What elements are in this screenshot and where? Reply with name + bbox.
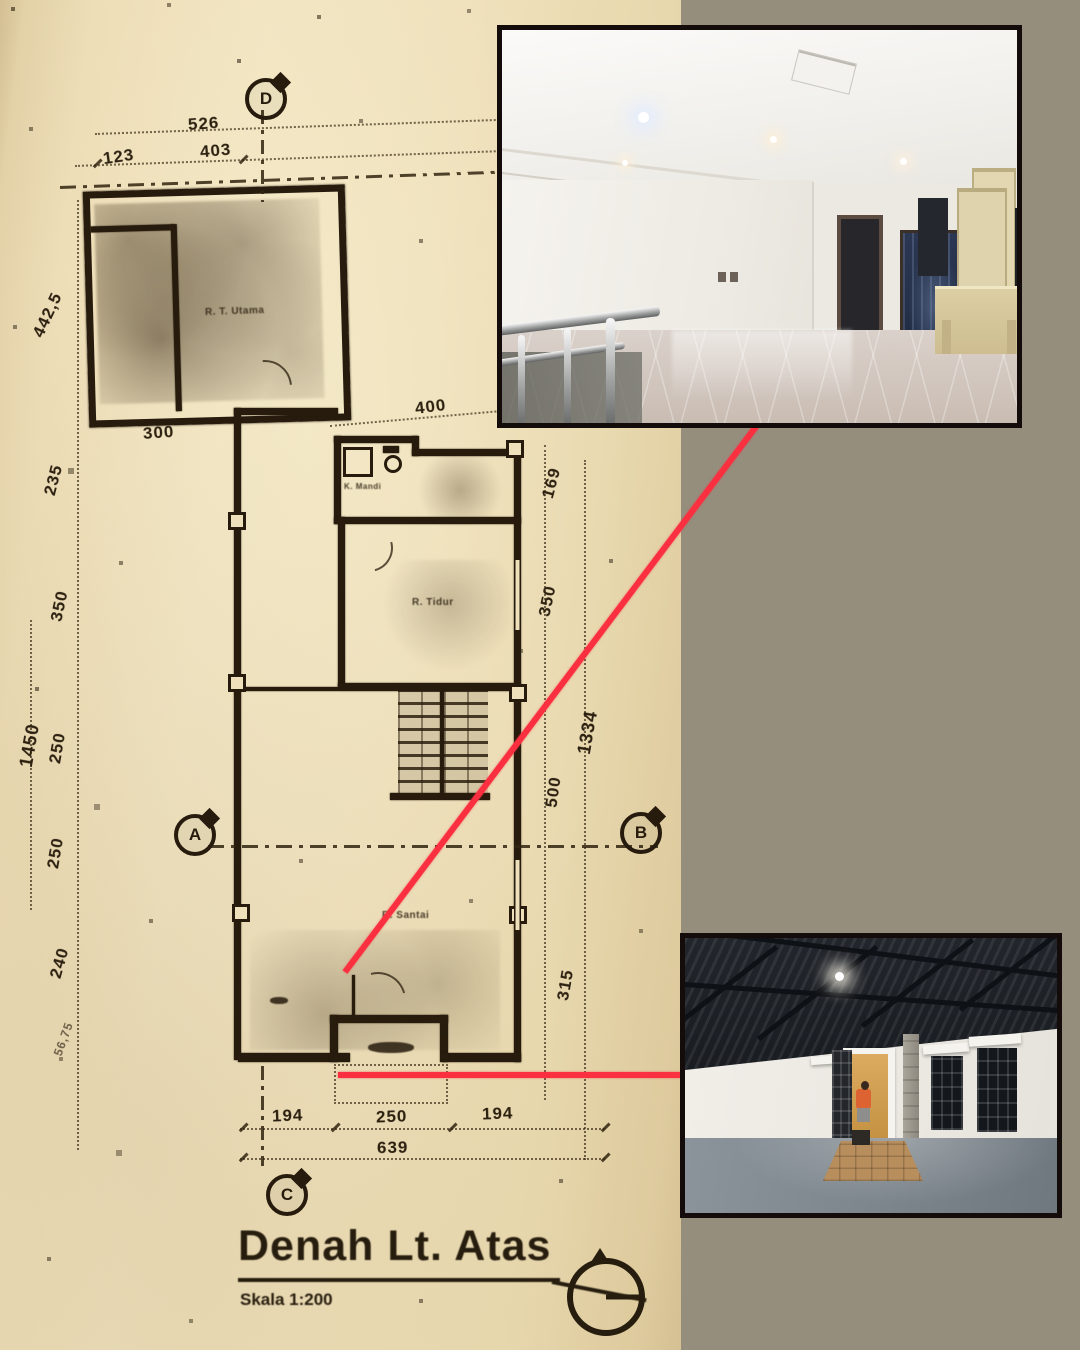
paper-speckles	[0, 0, 2, 2]
callout-line-lower	[338, 1072, 684, 1078]
person-head	[861, 1081, 869, 1090]
dimension-label: 194	[482, 1103, 514, 1124]
window-symbol	[514, 860, 521, 930]
wall-bath-left	[334, 436, 341, 524]
window-symbol	[514, 560, 521, 630]
plan-title: Denah Lt. Atas	[238, 1222, 551, 1271]
dim-line	[544, 445, 546, 1100]
ceiling	[502, 30, 1017, 190]
axis-marker-b: B	[620, 812, 662, 854]
dimension-label: 56,75	[51, 1020, 76, 1058]
scan-smudge	[420, 455, 520, 525]
room-label-master: R. T. Utama	[205, 305, 265, 318]
column-marker	[232, 904, 250, 922]
axis-line-ab	[208, 845, 658, 848]
scan-smudge	[250, 930, 500, 1050]
dim-line	[77, 200, 79, 1150]
dimension-label: 250	[43, 836, 68, 870]
wall-bed-left	[338, 517, 345, 689]
axis-line-d	[261, 110, 264, 202]
rail-post	[606, 318, 615, 428]
dimension-label: 403	[199, 140, 232, 163]
dim-tick	[601, 1152, 611, 1162]
ceiling-light	[622, 160, 628, 166]
axis-line-c	[261, 1066, 264, 1166]
dimension-label: 526	[187, 113, 220, 135]
dimension-label: 315	[553, 968, 578, 1002]
photo-upper-interior	[497, 25, 1022, 428]
ceiling-light	[835, 972, 844, 981]
dimension-label: 500	[542, 775, 566, 809]
dim-line	[240, 1128, 605, 1130]
person	[856, 1089, 871, 1109]
dimension-label: 639	[377, 1138, 409, 1159]
balcony-dashed-outline	[334, 1064, 448, 1104]
axis-marker-label: B	[635, 823, 647, 843]
wall-left	[234, 408, 241, 1060]
console-leg	[1007, 320, 1016, 354]
person-legs	[857, 1108, 870, 1122]
dimension-label: 1450	[16, 722, 44, 769]
wall-bottom-right	[442, 1053, 521, 1062]
axis-marker-c: C	[266, 1174, 308, 1216]
column-marker	[228, 674, 246, 692]
dimension-label: 400	[414, 395, 448, 419]
rail-baluster	[564, 328, 571, 428]
stair-rail	[440, 690, 444, 796]
title-underline	[238, 1278, 560, 1282]
scan-smudge	[360, 560, 510, 670]
dimension-label: 442,5	[29, 289, 67, 341]
wall-thin	[241, 687, 338, 691]
ceiling-light	[900, 158, 907, 165]
dimension-label: 300	[142, 422, 175, 444]
north-compass-icon	[567, 1258, 645, 1336]
column-marker	[228, 512, 246, 530]
wall-right	[514, 443, 521, 1062]
scale-label: Skala 1:200	[240, 1290, 333, 1310]
dim-line	[240, 1158, 605, 1160]
poster-canvas: R. T. Utama	[0, 0, 1080, 1350]
rail-baluster	[518, 335, 525, 428]
axis-marker-a: A	[174, 814, 216, 856]
toilet-icon	[384, 455, 402, 473]
room-label-bed: R. Tidur	[412, 597, 454, 608]
grille-door-panel	[832, 1050, 852, 1148]
dimension-label: 235	[40, 462, 67, 497]
dimension-label: 123	[102, 145, 136, 169]
light-switch	[730, 272, 738, 282]
display-hutch	[957, 188, 1007, 292]
dimension-label: 194	[272, 1105, 304, 1126]
dimension-label: 240	[46, 945, 74, 981]
dim-tick	[601, 1122, 611, 1132]
ceiling-light	[770, 136, 777, 143]
floor-reflection	[672, 330, 852, 428]
axis-marker-label: A	[189, 825, 201, 845]
dimension-label: 169	[538, 465, 565, 500]
dimension-label: 250	[45, 731, 70, 765]
shower-tray	[343, 447, 373, 477]
axis-marker-label: D	[260, 89, 272, 109]
ceiling-light	[638, 112, 649, 123]
concrete-pillar	[903, 1034, 919, 1146]
light-switch	[718, 272, 726, 282]
barred-window	[977, 1048, 1017, 1132]
column-marker	[509, 684, 527, 702]
compass-north-arrow	[591, 1248, 609, 1262]
dim-line	[95, 118, 527, 135]
photo-lower-interior	[680, 933, 1062, 1218]
dim-line	[75, 148, 567, 167]
stool	[852, 1130, 870, 1145]
illegible-note	[368, 1042, 414, 1053]
illegible-note	[270, 997, 288, 1004]
dim-line	[584, 460, 586, 1160]
dimension-label: 250	[376, 1106, 408, 1127]
dark-window-panel	[918, 198, 948, 276]
toilet-tank	[383, 446, 399, 453]
axis-marker-d: D	[245, 78, 287, 120]
wall-bath-top	[334, 436, 418, 443]
dimension-label: 1334	[574, 709, 602, 756]
dimension-label: 350	[47, 589, 73, 624]
axis-marker-label: C	[281, 1185, 293, 1205]
dimension-label: 350	[535, 584, 561, 619]
compass-hand	[606, 1295, 639, 1300]
barred-window	[931, 1056, 963, 1130]
room-label-bath: K. Mandi	[344, 482, 381, 491]
console-leg	[942, 320, 951, 354]
